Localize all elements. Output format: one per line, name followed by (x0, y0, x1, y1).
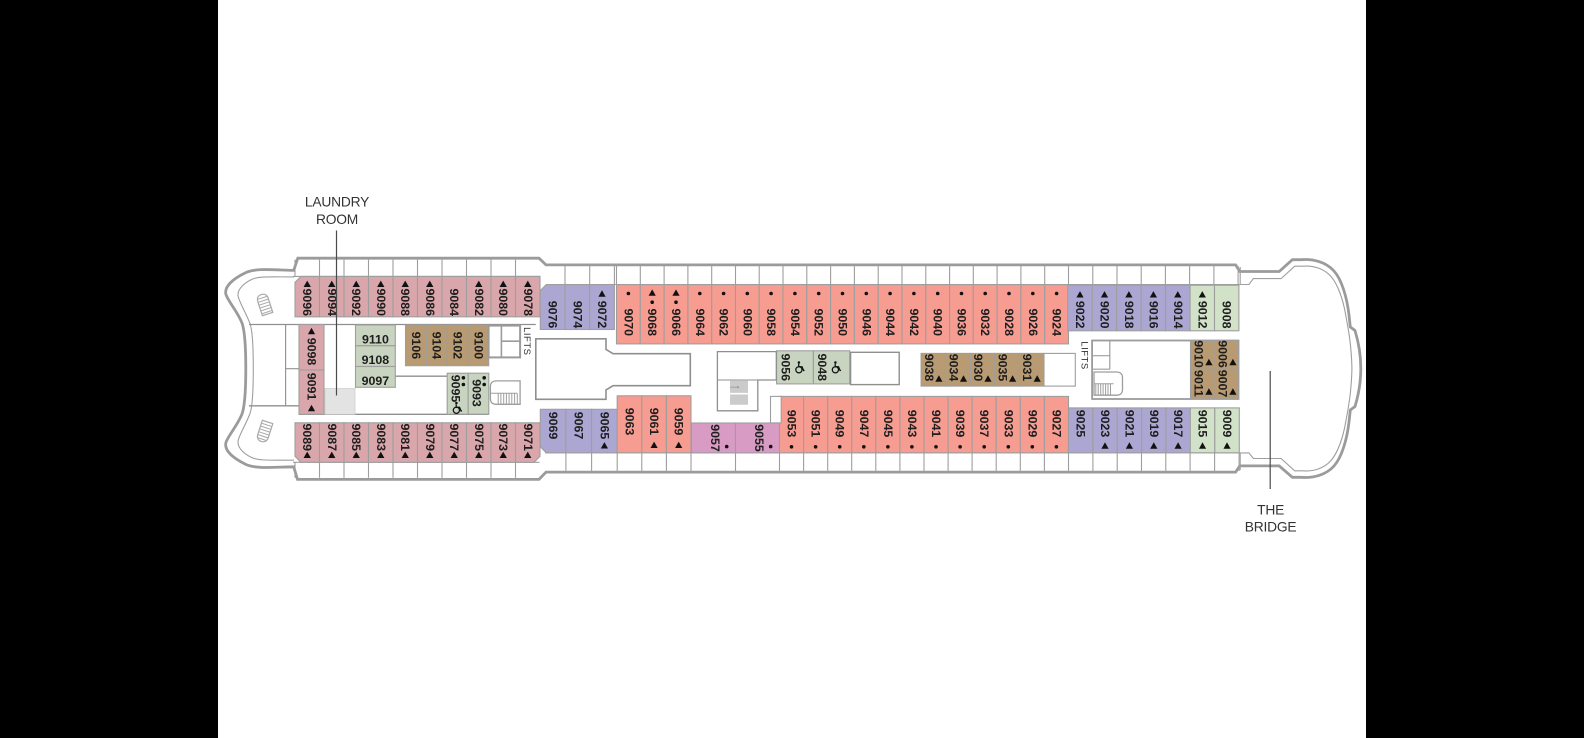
svg-text:9055: 9055 (752, 424, 766, 452)
svg-text:9045: 9045 (881, 410, 895, 438)
svg-text:9034: 9034 (947, 354, 961, 382)
svg-text:9019: 9019 (1147, 410, 1161, 438)
svg-text:9067: 9067 (572, 412, 586, 440)
svg-text:9014: 9014 (1171, 301, 1185, 329)
svg-text:9035: 9035 (996, 354, 1010, 382)
svg-text:9110: 9110 (362, 332, 389, 346)
svg-text:9060: 9060 (740, 309, 754, 337)
svg-text:9063: 9063 (623, 408, 637, 436)
svg-text:9065: 9065 (597, 412, 611, 440)
svg-text:9033: 9033 (1001, 410, 1015, 438)
svg-text:9052: 9052 (812, 309, 826, 337)
svg-text:9018: 9018 (1122, 301, 1136, 329)
svg-text:9054: 9054 (788, 309, 802, 337)
svg-text:9038: 9038 (922, 354, 936, 382)
svg-text:9078: 9078 (521, 289, 535, 317)
svg-text:9092: 9092 (349, 289, 363, 317)
svg-text:9037: 9037 (977, 410, 991, 438)
svg-text:9095: 9095 (449, 375, 463, 403)
svg-text:9010: 9010 (1191, 340, 1205, 368)
svg-text:9028: 9028 (1002, 309, 1016, 337)
svg-text:LIFTS: LIFTS (521, 327, 532, 355)
svg-text:9056: 9056 (779, 354, 793, 382)
svg-text:9027: 9027 (1049, 410, 1063, 438)
svg-text:9029: 9029 (1025, 410, 1039, 438)
svg-text:9097: 9097 (362, 374, 390, 388)
svg-text:9006: 9006 (1215, 340, 1229, 368)
svg-text:9057: 9057 (708, 424, 722, 452)
svg-text:9036: 9036 (955, 309, 969, 337)
svg-text:9043: 9043 (905, 410, 919, 438)
svg-text:9062: 9062 (717, 309, 731, 337)
svg-text:9016: 9016 (1146, 301, 1160, 329)
svg-text:9106: 9106 (409, 332, 423, 360)
svg-text:9089: 9089 (300, 424, 314, 452)
svg-text:9098: 9098 (305, 338, 319, 366)
svg-text:THE: THE (1257, 503, 1284, 518)
svg-text:9077: 9077 (447, 424, 461, 452)
svg-text:9073: 9073 (496, 424, 510, 452)
svg-text:9044: 9044 (883, 309, 897, 337)
svg-text:9031: 9031 (1020, 354, 1034, 382)
svg-text:9058: 9058 (764, 309, 778, 337)
svg-text:9049: 9049 (833, 410, 847, 438)
svg-text:9080: 9080 (496, 289, 510, 317)
svg-text:9091: 9091 (305, 373, 319, 401)
svg-text:9007: 9007 (1215, 370, 1229, 398)
svg-text:9009: 9009 (1220, 410, 1234, 438)
svg-text:9088: 9088 (398, 289, 412, 317)
svg-text:9068: 9068 (645, 309, 659, 337)
svg-text:9039: 9039 (953, 410, 967, 438)
svg-text:9069: 9069 (546, 412, 560, 440)
svg-text:9008: 9008 (1220, 301, 1234, 329)
svg-text:9090: 9090 (374, 289, 388, 317)
svg-text:BRIDGE: BRIDGE (1245, 520, 1297, 535)
svg-text:9102: 9102 (451, 332, 465, 360)
svg-text:9050: 9050 (836, 309, 850, 337)
svg-text:9040: 9040 (931, 309, 945, 337)
svg-text:9048: 9048 (815, 354, 829, 382)
svg-text:9076: 9076 (546, 301, 560, 329)
svg-text:9072: 9072 (595, 301, 609, 329)
svg-text:9083: 9083 (374, 424, 388, 452)
svg-text:9051: 9051 (809, 410, 823, 438)
svg-text:9024: 9024 (1050, 309, 1064, 337)
svg-text:9023: 9023 (1098, 410, 1112, 438)
svg-text:LAUNDRY: LAUNDRY (305, 195, 369, 210)
svg-text:9079: 9079 (423, 424, 437, 452)
svg-text:9030: 9030 (971, 354, 985, 382)
svg-text:9085: 9085 (349, 424, 363, 452)
svg-text:9070: 9070 (621, 309, 635, 337)
svg-text:9041: 9041 (929, 410, 943, 438)
svg-text:9012: 9012 (1195, 301, 1209, 329)
svg-text:9053: 9053 (785, 410, 799, 438)
svg-text:9084: 9084 (447, 289, 461, 317)
svg-text:9075: 9075 (472, 424, 486, 452)
svg-text:9108: 9108 (362, 353, 390, 367)
svg-text:9032: 9032 (978, 309, 992, 337)
svg-text:9025: 9025 (1074, 410, 1088, 438)
svg-text:9059: 9059 (672, 408, 686, 436)
svg-text:9026: 9026 (1026, 309, 1040, 337)
svg-text:9046: 9046 (859, 309, 873, 337)
svg-text:9086: 9086 (423, 289, 437, 317)
svg-text:9021: 9021 (1122, 410, 1136, 438)
svg-text:LIFTS: LIFTS (1078, 341, 1089, 369)
svg-text:9087: 9087 (325, 424, 339, 452)
svg-text:9042: 9042 (907, 309, 921, 337)
svg-text:9011: 9011 (1191, 370, 1205, 397)
svg-text:9066: 9066 (669, 309, 683, 337)
svg-text:9093: 9093 (469, 379, 483, 407)
svg-text:9022: 9022 (1073, 301, 1087, 329)
svg-text:9104: 9104 (430, 332, 444, 360)
svg-text:9100: 9100 (471, 332, 485, 360)
svg-text:9015: 9015 (1196, 410, 1210, 438)
svg-text:9096: 9096 (300, 289, 314, 317)
svg-text:ROOM: ROOM (316, 212, 358, 227)
svg-text:9017: 9017 (1171, 410, 1185, 438)
svg-text:9074: 9074 (570, 301, 584, 329)
svg-text:9061: 9061 (647, 408, 661, 436)
svg-text:9082: 9082 (472, 289, 486, 317)
svg-text:9064: 9064 (693, 309, 707, 337)
svg-text:9081: 9081 (398, 424, 412, 452)
svg-text:9071: 9071 (521, 424, 535, 452)
svg-text:9047: 9047 (857, 410, 871, 438)
svg-text:9020: 9020 (1098, 301, 1112, 329)
